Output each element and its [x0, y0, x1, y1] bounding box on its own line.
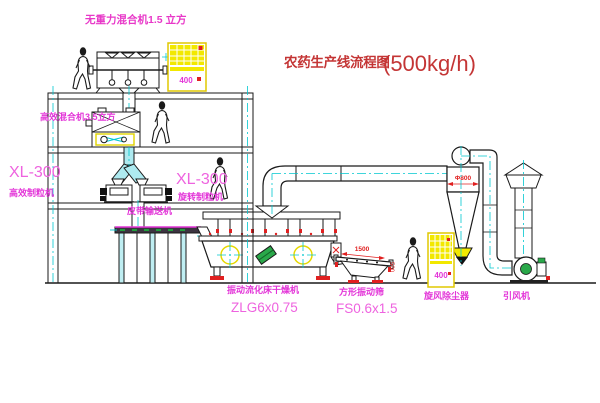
label-sieve-name: 方形振动筛 — [339, 286, 384, 297]
label-granulator-right-name: 旋转制粒机 — [177, 191, 223, 202]
person-figure — [403, 237, 421, 279]
page-title: 农药生产线流程图 — [283, 54, 390, 70]
diagram-canvas: 400 — [0, 0, 600, 403]
gravity-mixer — [89, 52, 170, 112]
label-granulator-right-model: XL-300 — [176, 171, 228, 188]
granulator-left — [100, 179, 134, 202]
label-high-mixer: 高效混合机3.5立方 — [40, 111, 116, 122]
sieve-width-dim: 1500 — [355, 246, 370, 253]
label-gravity-mixer: 无重力混合机1.5 立方 — [84, 13, 187, 26]
exhaust-duct — [256, 166, 461, 218]
cabinet-bottom-code: 400 — [434, 271, 448, 280]
page-title-capacity: (500kg/h) — [383, 51, 476, 76]
label-dryer-model: ZLG6x0.75 — [231, 300, 298, 315]
fluid-bed-dryer — [199, 212, 340, 280]
cyclone-diameter-label: Φ800 — [455, 175, 472, 182]
person-figure — [152, 101, 170, 143]
label-dryer-name: 振动流化床干燥机 — [227, 284, 299, 295]
label-granulator-left-model: XL-300 — [9, 164, 61, 181]
label-granulator-left-name: 高效制粒机 — [9, 187, 54, 198]
belt-conveyor — [110, 227, 214, 283]
label-sieve-model: FS0.6x1.5 — [336, 301, 398, 316]
label-cyclone: 旋风除尘器 — [423, 290, 470, 301]
person-figure — [73, 47, 91, 89]
vibrating-sieve: 1500 500 — [334, 246, 394, 283]
control-cabinet-bottom: 400 — [428, 233, 454, 287]
granulator-right — [136, 179, 172, 202]
sieve-side-dim: 500 — [388, 262, 394, 273]
cabinet-top-code: 400 — [179, 76, 193, 85]
induced-draft-fan — [510, 257, 550, 283]
rotary-valve — [452, 248, 472, 257]
control-cabinet-top: 400 — [168, 43, 206, 91]
label-belt-conveyor: 皮带输送机 — [126, 205, 172, 216]
label-fan: 引风机 — [503, 290, 530, 301]
